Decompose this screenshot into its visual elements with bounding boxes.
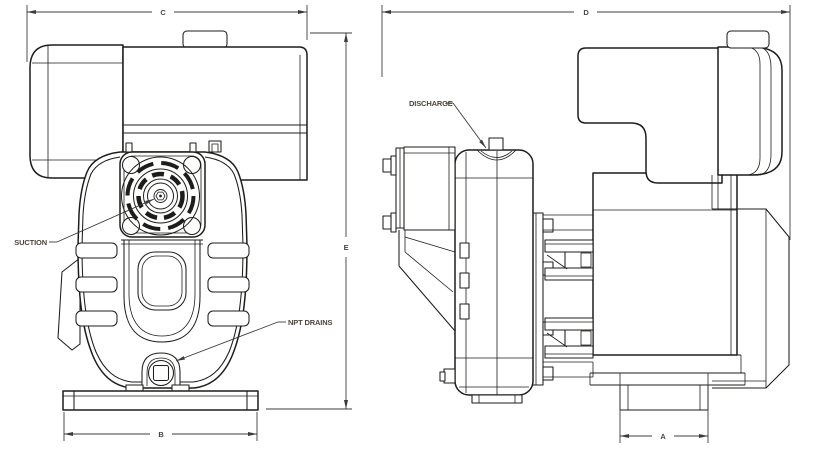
- dim-a-label: A: [660, 432, 666, 441]
- dim-c-label: C: [160, 8, 166, 17]
- bracket-stub: [190, 143, 196, 152]
- latch-tab: [460, 304, 469, 319]
- motor-foot-pad: [620, 385, 708, 410]
- motor-lower-body: [593, 173, 737, 355]
- dim-b-label: B: [158, 430, 164, 439]
- bracket-stub: [126, 143, 132, 152]
- bracket-bolt: [543, 367, 553, 380]
- motor-feet: [590, 355, 745, 410]
- junction-box: [183, 31, 227, 48]
- latch-tab: [460, 243, 469, 258]
- motor-side: [578, 31, 789, 410]
- discharge-callout: DISCHARGE: [409, 99, 486, 148]
- suction-port-circles: [122, 157, 200, 235]
- fan-cover-cap: [727, 31, 769, 48]
- mounting-bracket: [532, 213, 593, 385]
- drawing-canvas: C E B SUCTION: [0, 0, 829, 474]
- dimension-b: B: [64, 412, 257, 441]
- fan-cover: [718, 31, 782, 175]
- side-flap: [58, 258, 80, 350]
- front-view: C E B SUCTION: [14, 5, 352, 441]
- casing-vent-nub: [209, 141, 221, 152]
- casing-foot: [472, 395, 522, 403]
- casing-drain-nub: [444, 369, 455, 383]
- discharge-leader-arrow: [479, 140, 486, 148]
- suction-flange: [120, 152, 205, 237]
- motor-upper-housing: [578, 48, 722, 183]
- inlet-block: [404, 147, 455, 230]
- flange-bolt: [383, 159, 391, 172]
- dim-d-label: D: [583, 8, 589, 17]
- clamp-bracket: [545, 318, 593, 358]
- npt-drains-label: NPT DRAINS: [288, 318, 332, 327]
- inlet-assembly: [383, 147, 455, 331]
- flange-bolt-hole: [184, 157, 201, 174]
- seal-housing: [121, 240, 203, 342]
- latch-tab: [460, 273, 469, 288]
- side-view: D A DISCHARGE: [382, 5, 790, 443]
- clamp-bracket: [545, 240, 593, 280]
- drain-assembly: [142, 353, 180, 386]
- volute-funnel: [399, 230, 455, 331]
- discharge-label: DISCHARGE: [409, 99, 453, 108]
- pump-dimension-drawing: C E B SUCTION: [0, 0, 829, 474]
- dim-e-label: E: [344, 243, 349, 252]
- suction-label: SUCTION: [14, 238, 47, 247]
- flange-bolt: [383, 216, 391, 229]
- flange-bolt-hole: [123, 218, 140, 235]
- base-plate: [63, 391, 258, 410]
